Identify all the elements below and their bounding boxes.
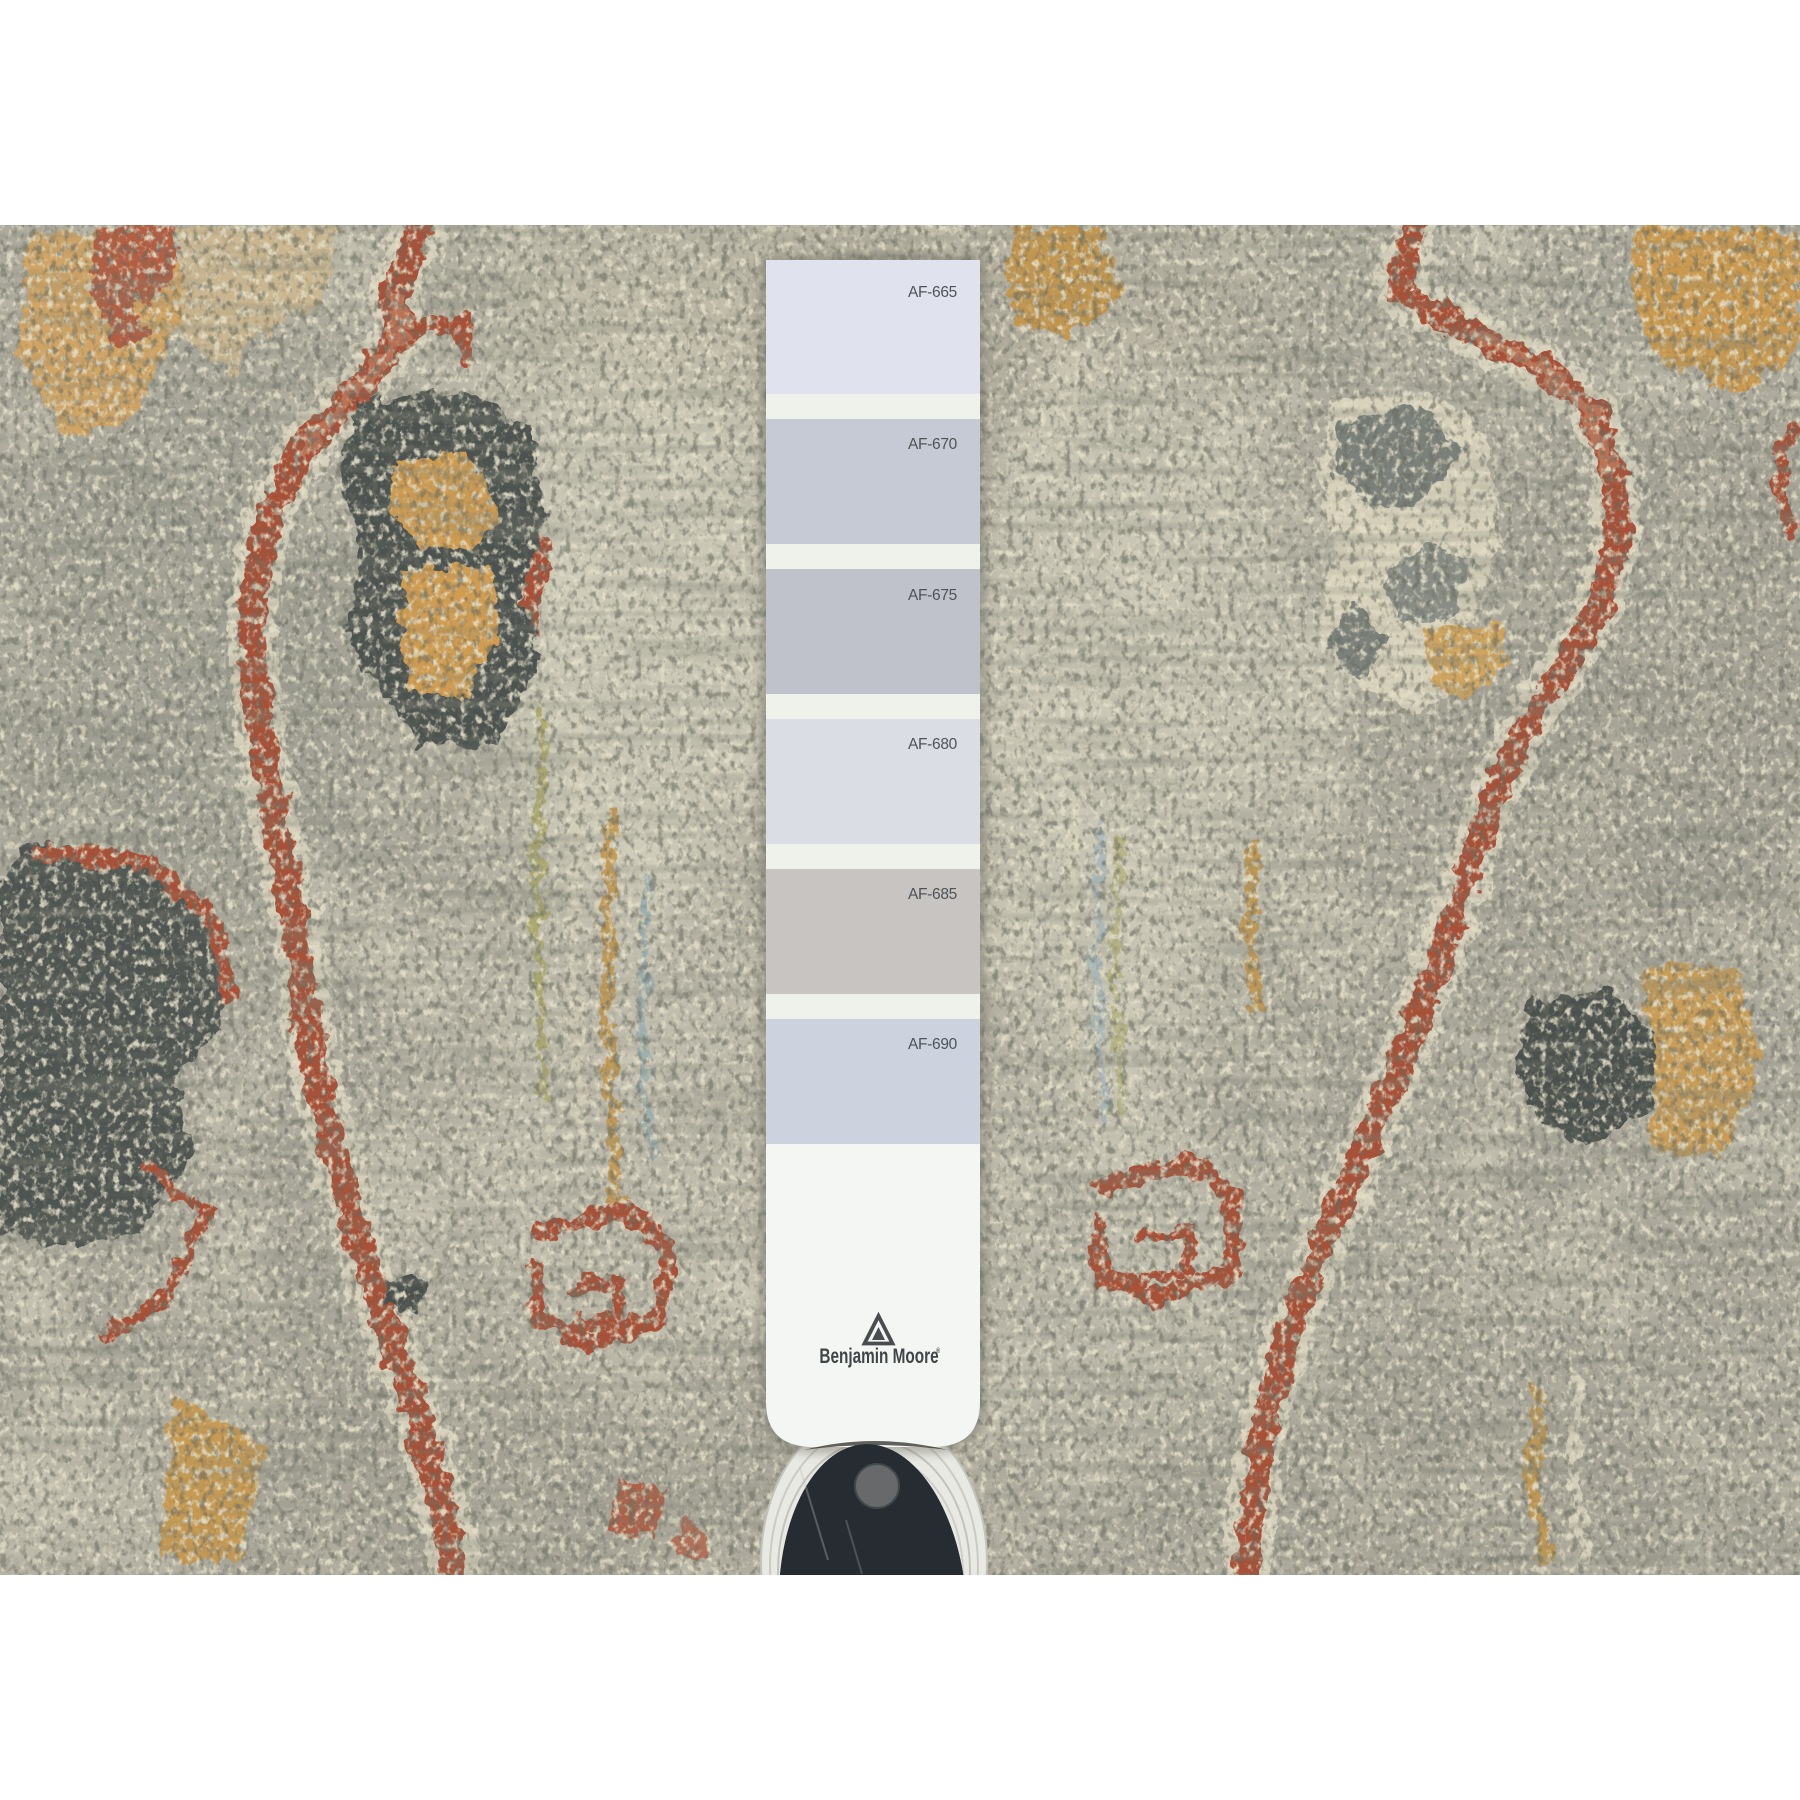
svg-text:AF-665: AF-665 (908, 284, 957, 301)
svg-text:AF-680: AF-680 (908, 736, 958, 753)
svg-text:AF-685: AF-685 (908, 886, 957, 903)
svg-text:AF-675: AF-675 (908, 587, 957, 604)
svg-text:AF-670: AF-670 (908, 436, 958, 453)
svg-text:AF-690: AF-690 (908, 1036, 958, 1053)
svg-text:Benjamin Moore: Benjamin Moore (819, 1344, 938, 1368)
svg-text:®: ® (936, 1347, 940, 1355)
